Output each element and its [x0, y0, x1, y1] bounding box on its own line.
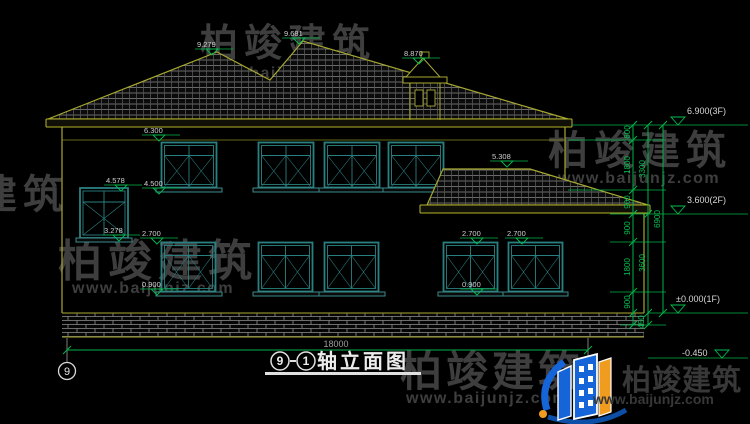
level-f3-text: 6.900(3F)	[687, 106, 726, 116]
cad-elevation-screenshot: 柏竣建筑 www.baijunjz.com 柏竣建筑 柏竣建筑 www.baij…	[0, 0, 750, 424]
marker-stair-top-text: 4.578	[106, 176, 125, 185]
main-eave-band	[46, 119, 572, 127]
level-f1-triangle	[671, 305, 685, 313]
dim-plinth-450: 450	[637, 315, 646, 329]
dim-seg-1800b: 1800	[623, 258, 632, 276]
marker-lintel-1f-right1-text: 2.700	[462, 229, 481, 238]
chimney-cap	[406, 58, 440, 77]
window-2f-1	[162, 143, 217, 188]
logo-building-left	[558, 366, 571, 420]
chimney-vent-right	[427, 90, 435, 106]
dim-floor-3300: 3300	[638, 160, 647, 178]
dim-seg-900b: 900	[623, 221, 632, 235]
sill-2f-2	[253, 188, 319, 192]
window-2f-3	[325, 143, 380, 188]
watermark-left-brand: 柏竣建筑	[58, 237, 258, 286]
dim-floor-3600: 3600	[638, 254, 647, 272]
marker-annex-roof: 5.308	[490, 152, 528, 167]
sill-1f-3	[319, 292, 385, 296]
title-text: 轴立面图	[317, 349, 409, 373]
window-1f-5	[509, 243, 563, 292]
sill-2f-3	[319, 188, 385, 192]
elevation-drawing: 柏竣建筑 www.baijunjz.com 柏竣建筑 柏竣建筑 www.baij…	[0, 0, 750, 424]
sill-1f-5	[503, 292, 568, 296]
level-f2-text: 3.600(2F)	[687, 195, 726, 205]
marker-sill-1f-right-text: 0.900	[462, 280, 481, 289]
dim-18000-text: 18000	[323, 339, 348, 349]
main-roof-tiles	[48, 41, 568, 119]
annex-eave-band	[420, 205, 650, 213]
sill-1f-1	[156, 292, 222, 296]
marker-chimney-text: 8.870	[404, 49, 423, 58]
dim-seg-900c: 900	[623, 295, 632, 309]
level-ground-text: -0.450	[682, 348, 708, 358]
marker-lintel-1f-left-text: 2.700	[142, 229, 161, 238]
marker-eave-text: 6.300	[144, 126, 163, 135]
dim-seg-1800a: 1800	[623, 156, 632, 174]
marker-ridge-left-text: 9.279	[197, 40, 216, 49]
title-block: 9 1 轴立面图	[265, 349, 421, 375]
window-2f-2	[259, 143, 314, 188]
marker-eave: 6.300	[142, 126, 180, 141]
sill-1f-4	[438, 292, 503, 296]
level-f2-triangle	[671, 206, 685, 214]
sill-2f-1	[156, 188, 222, 192]
dim-seg-900a: 900	[623, 195, 632, 209]
level-f1-text: ±0.000(1F)	[676, 294, 720, 304]
logo-url-text: www.baijunjz.com	[592, 391, 714, 407]
logo-building-main	[574, 354, 597, 419]
marker-chimney: 8.870	[402, 49, 440, 64]
title-circle-9-text: 9	[277, 354, 284, 368]
marker-sill-1f-left-text: 0.900	[142, 280, 161, 289]
logo-building-orange	[599, 358, 611, 416]
logo-dot	[539, 410, 547, 418]
window-2f-4	[389, 143, 444, 188]
sill-stair	[76, 238, 132, 242]
title-circle-1-text: 1	[303, 354, 310, 368]
title-underline	[265, 372, 421, 375]
window-1f-2	[259, 243, 313, 292]
plinth-bricks	[62, 313, 644, 337]
window-1f-3	[325, 243, 379, 292]
chimney-cornice	[403, 77, 447, 83]
sill-1f-2	[253, 292, 319, 296]
marker-annex-roof-triangle	[501, 161, 513, 167]
marker-annex-roof-text: 5.308	[492, 152, 511, 161]
chimney-vent-left	[415, 90, 423, 106]
dim-total-6900: 6900	[653, 210, 662, 228]
main-roof	[46, 41, 572, 127]
dim-seg-600: 600	[623, 125, 632, 139]
marker-stair-bottom-text: 3.278	[104, 226, 123, 235]
level-ground-triangle	[715, 350, 729, 358]
marker-ridge-main-text: 9.681	[284, 29, 303, 38]
marker-lintel-1f-right2-text: 2.700	[507, 229, 526, 238]
watermark-farleft-brand: 柏竣建筑	[0, 173, 69, 217]
marker-sill-2f-text: 4.500	[144, 179, 163, 188]
level-f3-triangle	[671, 117, 685, 125]
axis-bubble-9-text: 9	[64, 366, 70, 378]
